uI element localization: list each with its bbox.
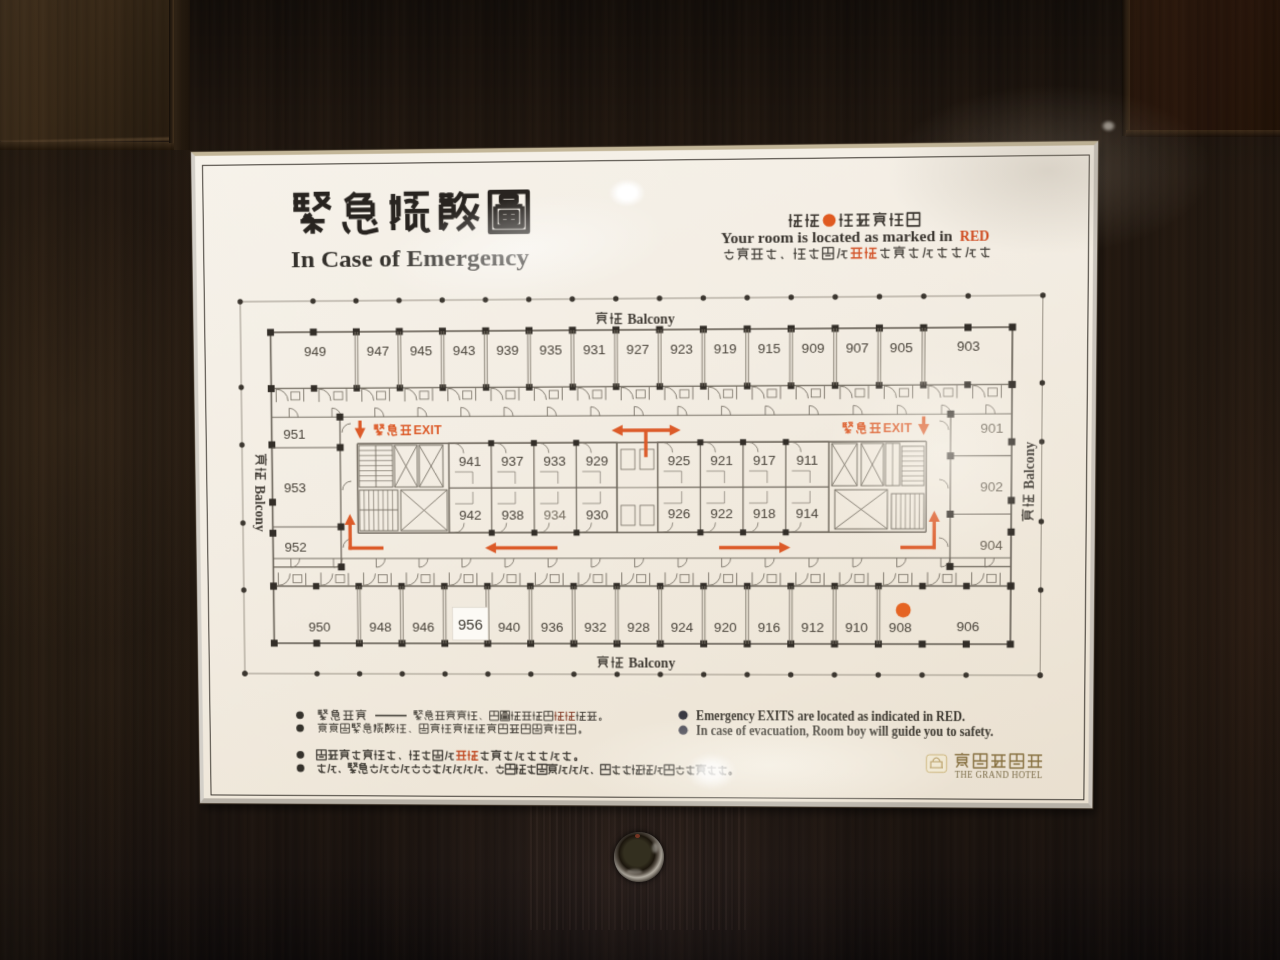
svg-text:950: 950 [308, 619, 330, 634]
svg-text:924: 924 [671, 620, 694, 635]
svg-text:940: 940 [498, 619, 521, 634]
svg-text:934: 934 [544, 507, 567, 522]
svg-text:932: 932 [584, 619, 607, 634]
svg-text:908: 908 [889, 620, 912, 635]
svg-text:925: 925 [668, 453, 691, 468]
svg-text:953: 953 [284, 481, 306, 496]
svg-text:948: 948 [369, 619, 391, 634]
svg-text:929: 929 [586, 454, 609, 469]
svg-text:938: 938 [501, 507, 524, 522]
svg-text:916: 916 [758, 620, 781, 635]
svg-text:952: 952 [284, 540, 306, 555]
svg-text:927: 927 [626, 341, 649, 356]
svg-text:946: 946 [412, 619, 434, 634]
svg-text:920: 920 [714, 620, 737, 635]
svg-text:931: 931 [583, 342, 606, 357]
svg-text:935: 935 [539, 342, 562, 357]
svg-text:926: 926 [668, 507, 691, 522]
svg-text:941: 941 [459, 454, 482, 469]
svg-text:928: 928 [627, 619, 650, 634]
svg-text:943: 943 [453, 343, 476, 358]
svg-text:939: 939 [496, 342, 519, 357]
svg-text:942: 942 [459, 507, 482, 522]
svg-text:930: 930 [586, 507, 609, 522]
svg-text:910: 910 [845, 620, 868, 635]
svg-text:EXIT: EXIT [413, 423, 442, 437]
svg-text:933: 933 [543, 454, 566, 469]
svg-text:906: 906 [956, 619, 979, 634]
svg-text:936: 936 [541, 619, 564, 634]
svg-text:Balcony: Balcony [252, 485, 268, 532]
svg-text:956: 956 [458, 618, 483, 634]
svg-text:937: 937 [501, 454, 524, 469]
svg-text:951: 951 [283, 427, 305, 442]
svg-text:912: 912 [801, 620, 824, 635]
svg-text:923: 923 [670, 341, 693, 356]
